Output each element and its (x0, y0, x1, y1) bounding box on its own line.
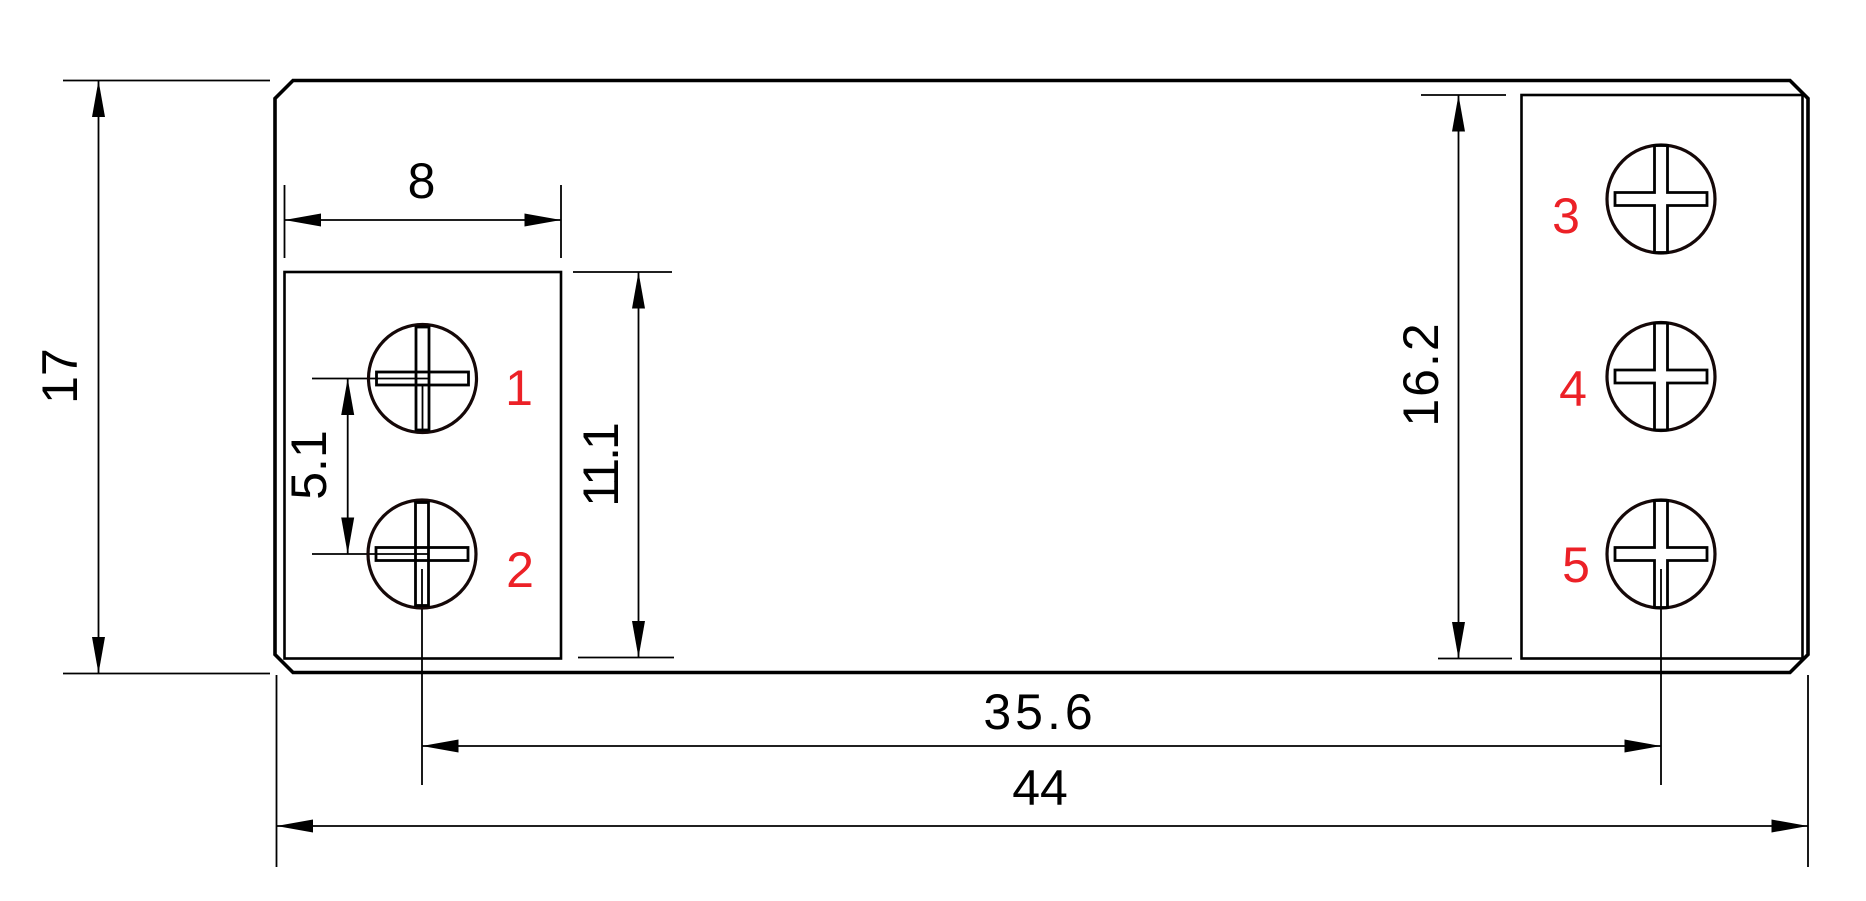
svg-text:11.1: 11.1 (573, 424, 629, 507)
svg-text:35.6: 35.6 (983, 684, 1096, 740)
svg-text:1: 1 (505, 360, 533, 416)
svg-text:8: 8 (408, 153, 436, 209)
svg-text:5.1: 5.1 (281, 430, 337, 500)
svg-text:5: 5 (1562, 537, 1590, 593)
svg-text:3: 3 (1552, 188, 1580, 244)
svg-text:2: 2 (506, 542, 534, 598)
svg-text:4: 4 (1559, 361, 1587, 417)
svg-text:17: 17 (32, 348, 88, 404)
svg-text:44: 44 (1012, 760, 1068, 816)
svg-text:16.2: 16.2 (1393, 321, 1449, 426)
